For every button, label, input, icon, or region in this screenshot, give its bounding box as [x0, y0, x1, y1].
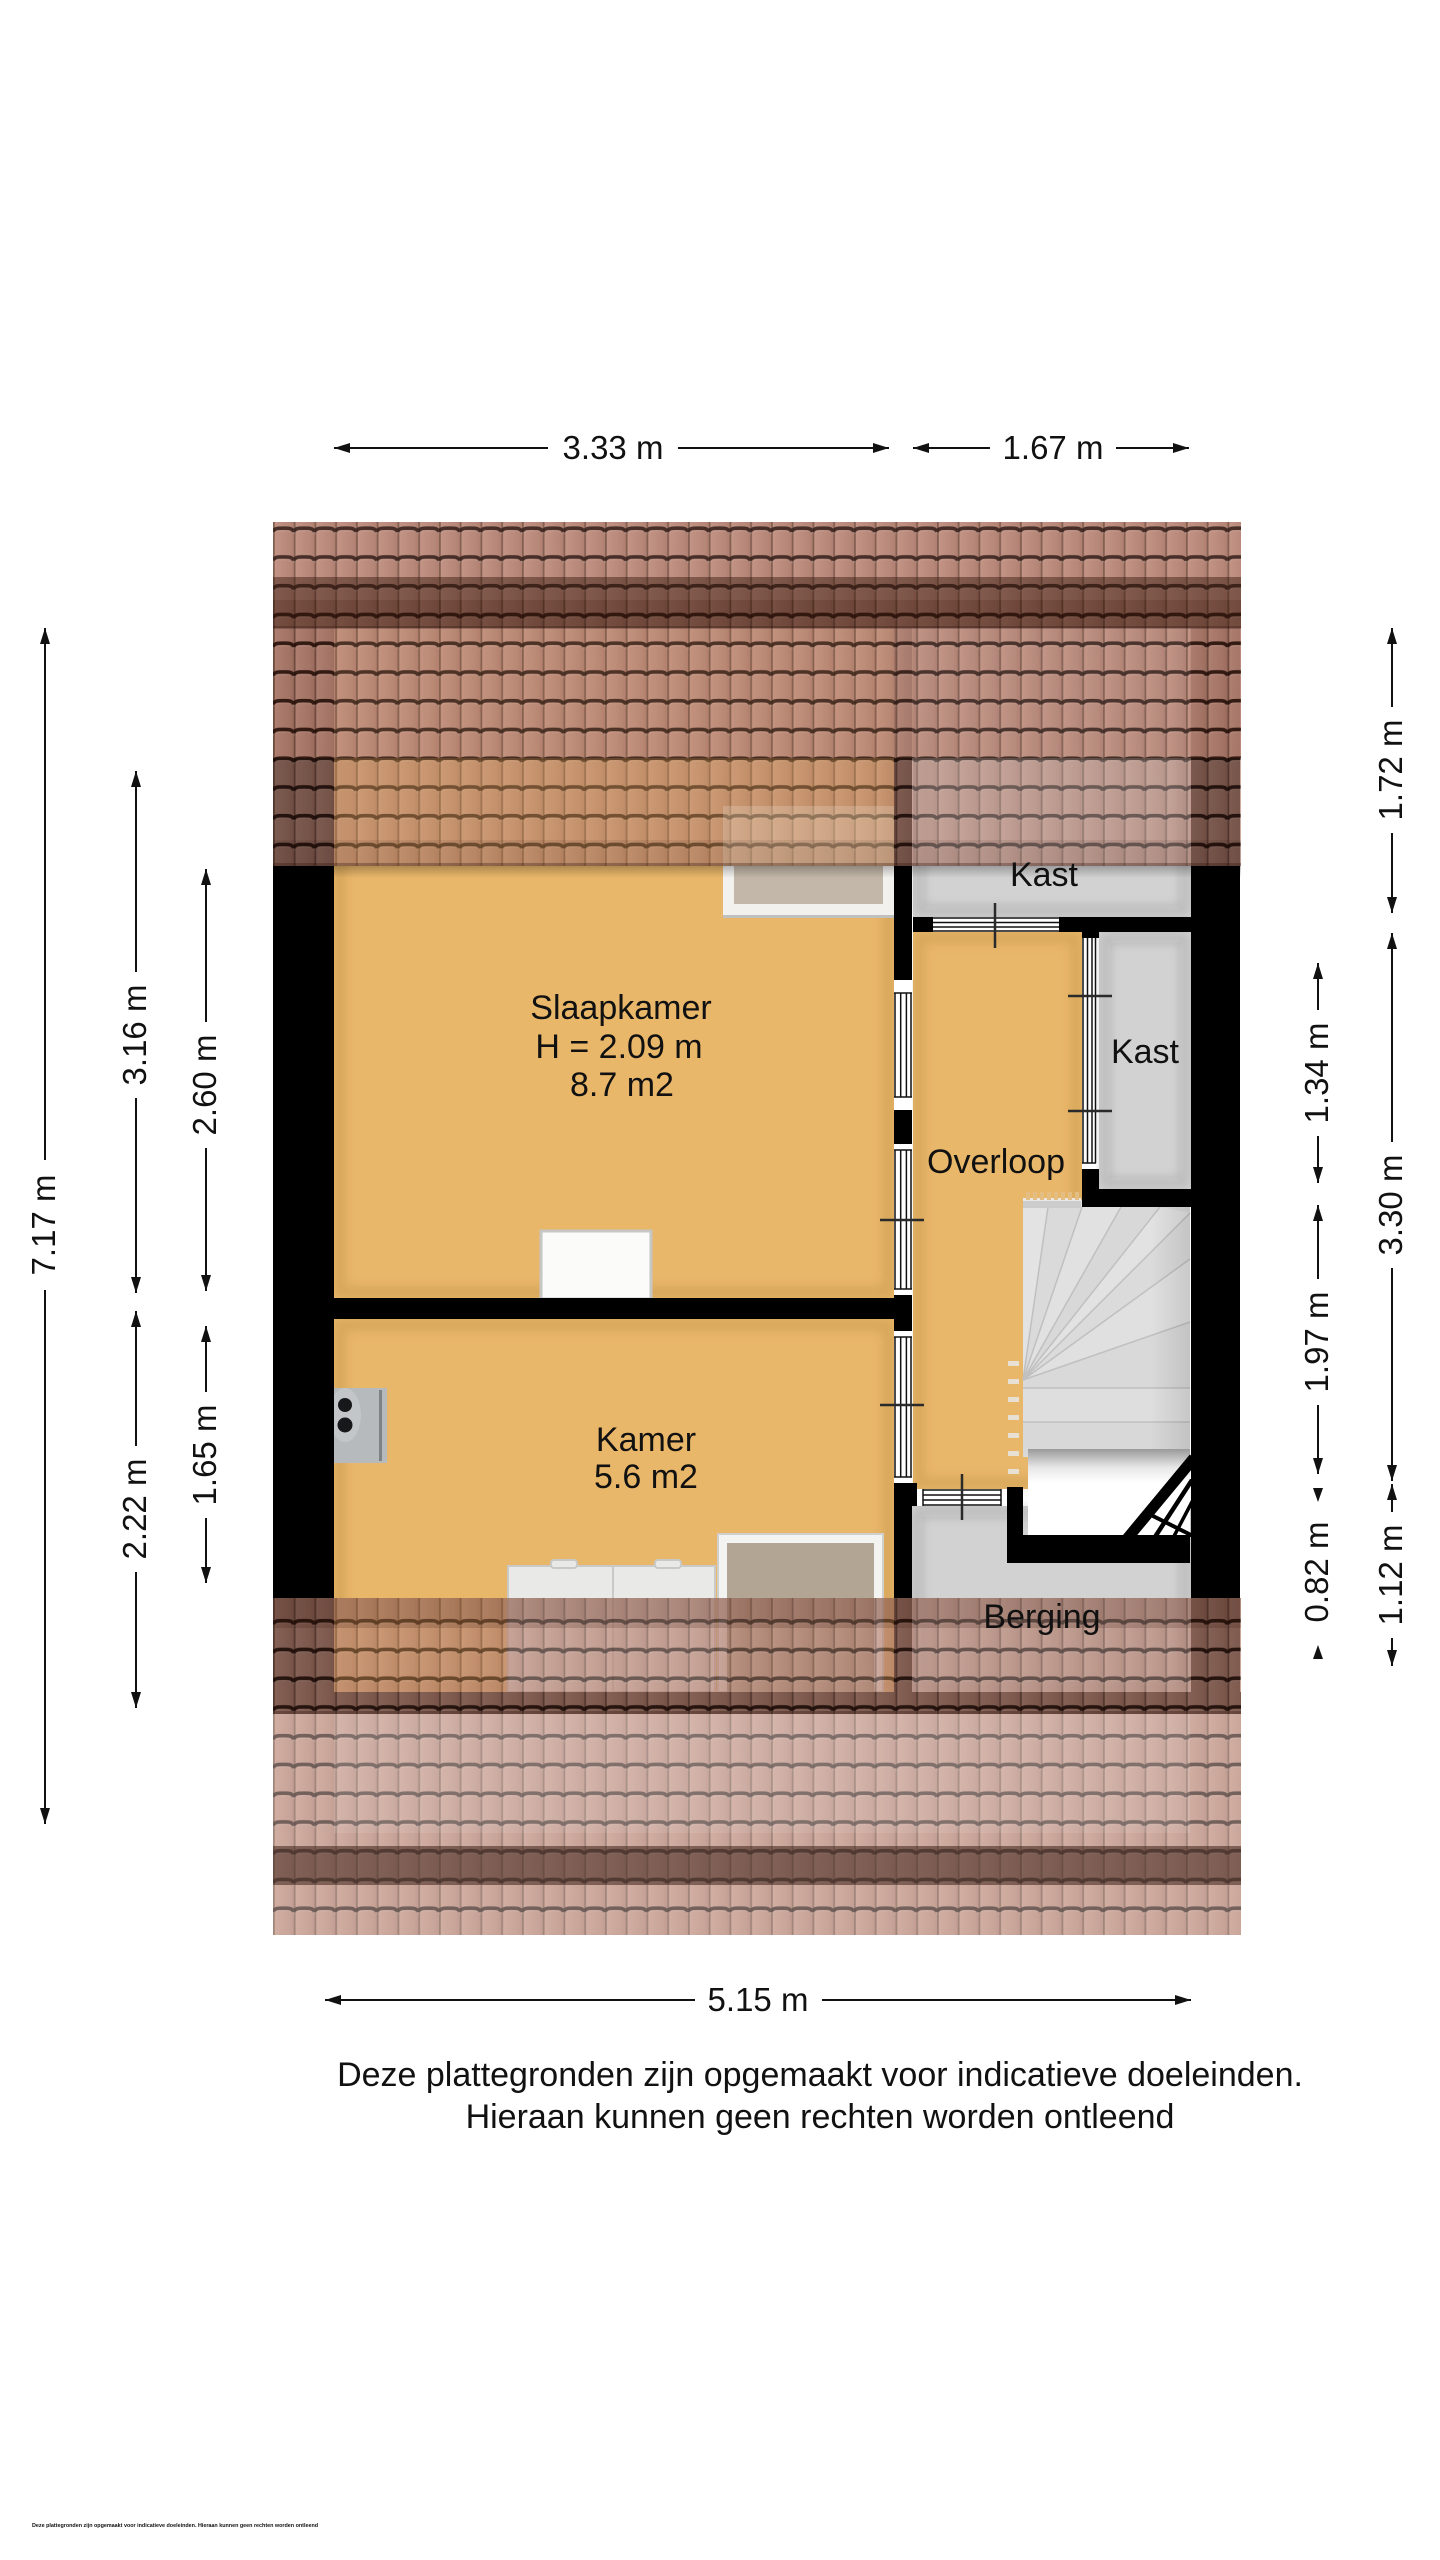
svg-text:Kast: Kast: [1010, 856, 1079, 894]
svg-text:1.12 m: 1.12 m: [1372, 1525, 1409, 1626]
svg-text:7.17 m: 7.17 m: [25, 1175, 62, 1276]
svg-text:Berging: Berging: [983, 1598, 1100, 1636]
svg-text:3.16 m: 3.16 m: [116, 985, 153, 1086]
svg-text:Overloop: Overloop: [927, 1143, 1065, 1181]
svg-text:Slaapkamer: Slaapkamer: [530, 989, 711, 1027]
svg-text:1.97 m: 1.97 m: [1298, 1292, 1335, 1393]
svg-text:2.60 m: 2.60 m: [186, 1035, 223, 1136]
svg-text:Kast: Kast: [1111, 1033, 1180, 1071]
svg-text:Kamer: Kamer: [596, 1421, 696, 1459]
svg-text:1.34 m: 1.34 m: [1298, 1023, 1335, 1124]
svg-text:1.72 m: 1.72 m: [1372, 720, 1409, 821]
svg-text:1.65 m: 1.65 m: [186, 1405, 223, 1506]
svg-text:0.82 m: 0.82 m: [1298, 1522, 1335, 1623]
svg-text:5.6 m2: 5.6 m2: [594, 1458, 698, 1496]
svg-text:3.30 m: 3.30 m: [1372, 1155, 1409, 1256]
svg-text:8.7 m2: 8.7 m2: [570, 1066, 674, 1104]
svg-text:Hieraan kunnen geen rechten wo: Hieraan kunnen geen rechten worden ontle…: [466, 2098, 1175, 2136]
svg-text:Deze plattegronden zijn opgema: Deze plattegronden zijn opgemaakt voor i…: [32, 2523, 318, 2529]
svg-text:H = 2.09 m: H = 2.09 m: [535, 1028, 702, 1066]
svg-text:1.67 m: 1.67 m: [1003, 429, 1104, 466]
svg-text:Deze plattegronden zijn opgema: Deze plattegronden zijn opgemaakt voor i…: [337, 2056, 1303, 2094]
svg-text:2.22 m: 2.22 m: [116, 1459, 153, 1560]
svg-text:5.15 m: 5.15 m: [708, 1981, 809, 2018]
svg-text:3.33 m: 3.33 m: [563, 429, 664, 466]
